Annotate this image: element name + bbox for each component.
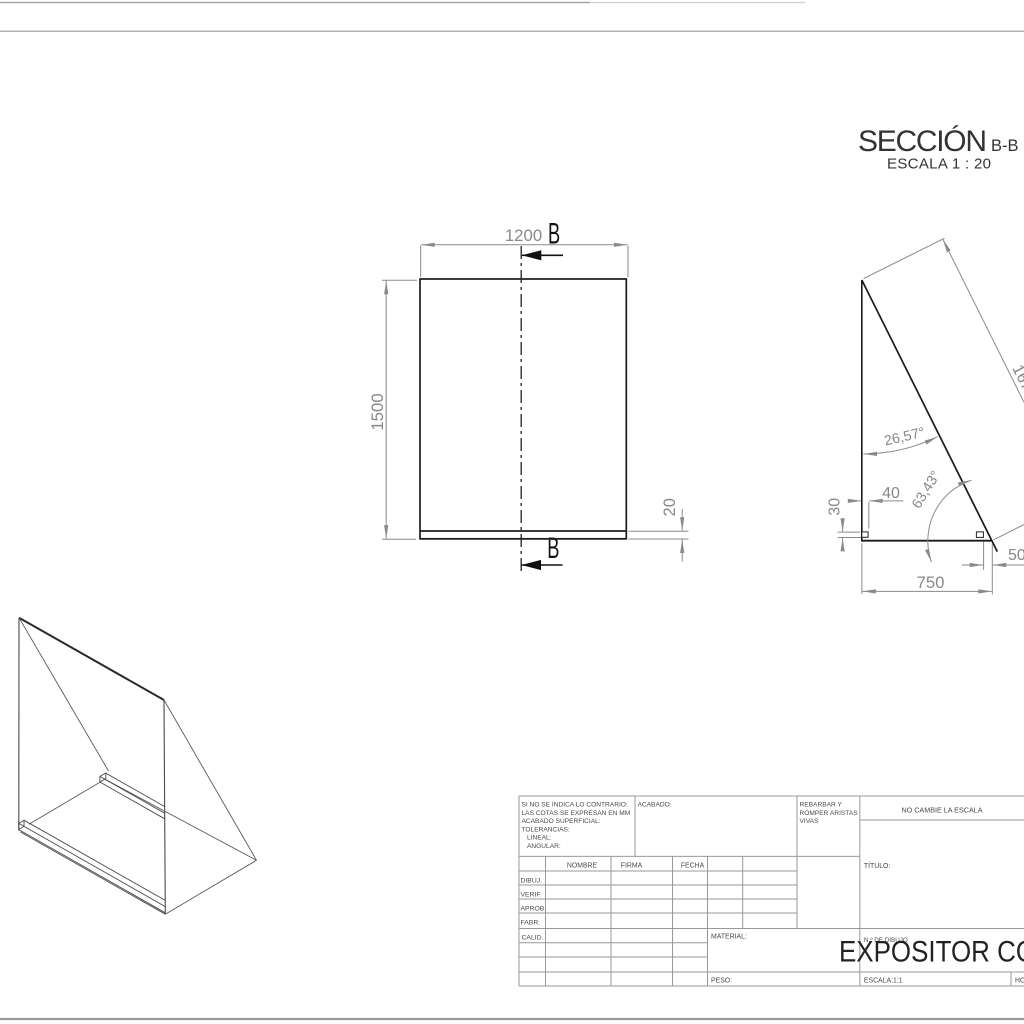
svg-text:1200: 1200 — [505, 226, 542, 245]
svg-text:30: 30 — [827, 498, 844, 516]
svg-text:SECCIÓN: SECCIÓN — [858, 125, 987, 158]
svg-text:ESCALA:1:1: ESCALA:1:1 — [864, 978, 903, 985]
svg-text:TÍTULO:: TÍTULO: — [864, 861, 891, 870]
svg-text:MATERIAL:: MATERIAL: — [711, 934, 747, 941]
svg-text:ANGULAR:: ANGULAR: — [527, 843, 561, 850]
svg-text:LAS COTAS SE EXPRESAN EN MM: LAS COTAS SE EXPRESAN EN MM — [522, 810, 631, 817]
svg-text:1500: 1500 — [368, 393, 387, 430]
svg-text:LINEAL:: LINEAL: — [527, 835, 552, 842]
svg-text:FABR.: FABR. — [521, 920, 541, 927]
svg-text:REBARBAR Y: REBARBAR Y — [800, 802, 843, 809]
svg-text:VERIF.: VERIF. — [521, 892, 542, 899]
svg-text:ACABADO SUPERFICIAL:: ACABADO SUPERFICIAL: — [522, 818, 601, 825]
svg-text:750: 750 — [917, 573, 945, 592]
svg-text:20: 20 — [661, 498, 679, 516]
svg-text:CALID.: CALID. — [522, 935, 544, 942]
svg-text:ESCALA 1 : 20: ESCALA 1 : 20 — [887, 155, 991, 172]
svg-text:B: B — [548, 217, 560, 250]
svg-text:FIRMA: FIRMA — [621, 863, 643, 870]
svg-text:SI NO SE INDICA LO CONTRARIO:: SI NO SE INDICA LO CONTRARIO: — [522, 802, 628, 809]
svg-text:B: B — [547, 532, 559, 565]
svg-text:40: 40 — [882, 485, 900, 502]
svg-text:HOJA: HOJA — [1015, 978, 1024, 985]
svg-text:NOMBRE: NOMBRE — [567, 863, 598, 870]
svg-text:APROB.: APROB. — [521, 906, 547, 913]
svg-text:DIBUJ.: DIBUJ. — [521, 878, 543, 885]
svg-text:EXPOSITOR CO: EXPOSITOR CO — [839, 936, 1024, 969]
svg-text:PESO:: PESO: — [711, 978, 732, 985]
svg-text:ROMPER ARISTAS: ROMPER ARISTAS — [800, 810, 859, 817]
svg-text:ACABADO:: ACABADO: — [638, 802, 672, 809]
svg-text:TOLERANCIAS:: TOLERANCIAS: — [522, 826, 570, 833]
svg-text:50: 50 — [1008, 547, 1024, 564]
svg-text:NO CAMBIE LA ESCALA: NO CAMBIE LA ESCALA — [901, 806, 982, 815]
svg-text:FECHA: FECHA — [681, 863, 705, 870]
svg-text:B-B: B-B — [991, 137, 1019, 155]
svg-text:VIVAS: VIVAS — [800, 818, 820, 825]
